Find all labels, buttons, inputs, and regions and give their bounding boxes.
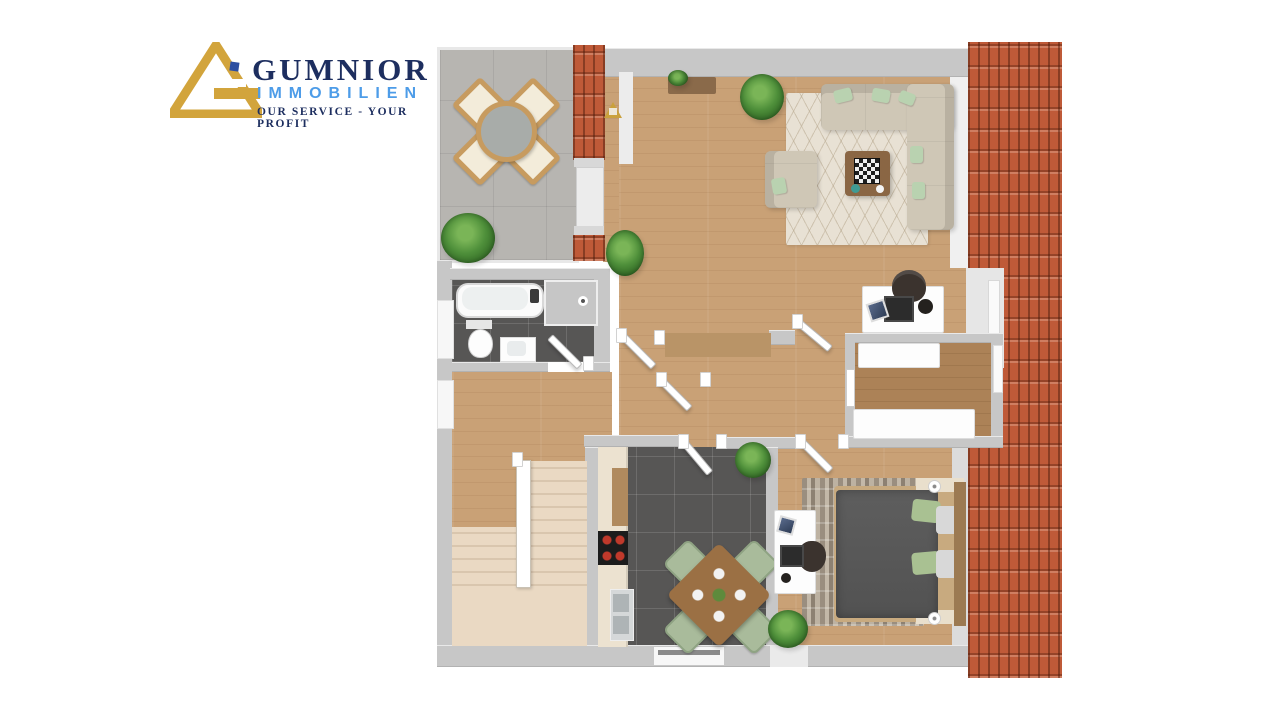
terrace-plant — [441, 213, 495, 263]
terrace-door-sill-bottom — [574, 226, 604, 235]
kitchen-stove — [598, 531, 628, 565]
entrance-marker-icon — [604, 102, 622, 118]
living-room-plant — [740, 74, 784, 120]
toilet-tank — [466, 320, 492, 329]
terrace-door-sill-top — [574, 158, 604, 167]
sink-basin-1 — [613, 594, 629, 612]
kitchen-plant — [735, 442, 771, 478]
logo-brand-text: GUMNIOR — [252, 52, 430, 88]
sofa-pillow-4 — [910, 146, 923, 163]
door-jamb — [792, 314, 803, 329]
terrace-glass-door — [576, 167, 604, 229]
door-jamb — [678, 434, 689, 449]
door-jamb — [716, 434, 727, 449]
table-candle — [876, 185, 884, 193]
sofa-pillow-5 — [912, 182, 925, 199]
left-wall-window-1 — [437, 300, 454, 359]
office-laptop — [884, 296, 914, 322]
door-jamb — [700, 372, 711, 387]
door-jamb — [795, 434, 806, 449]
hallway-step-platform — [665, 333, 771, 357]
company-logo: GUMNIOR IMMOBILIEN OUR SERVICE - YOUR PR… — [170, 40, 450, 126]
door-jamb — [583, 356, 594, 371]
door-jamb — [616, 328, 627, 343]
terrace-table — [476, 101, 537, 162]
bedside-lamp-bottom — [928, 612, 941, 625]
sink-basin-2 — [613, 616, 629, 634]
bathtub-basin — [462, 287, 528, 310]
bedroom-plant — [768, 610, 808, 648]
wardrobe-top — [858, 343, 940, 368]
dressing-window — [993, 345, 1003, 393]
kitchen-counter-wood — [612, 468, 628, 526]
stairs-railing — [516, 460, 531, 588]
roof-strip-terrace-top — [573, 45, 605, 160]
bedside-lamp-top — [928, 480, 941, 493]
floor-plan-page: GUMNIOR IMMOBILIEN OUR SERVICE - YOUR PR… — [0, 0, 1280, 721]
stairs-flight-right — [529, 461, 587, 586]
sideboard-plant — [668, 70, 688, 86]
chessboard — [854, 158, 880, 184]
dressing-door — [846, 369, 855, 407]
hallway-plant — [606, 230, 644, 276]
roof-strip-terrace-bottom — [573, 235, 605, 261]
door-jamb — [838, 434, 849, 449]
door-jamb — [656, 372, 667, 387]
bathtub-faucet — [530, 289, 539, 303]
armchair-pillow — [771, 177, 788, 195]
kitchen-top-wall — [584, 435, 686, 447]
hallway-wall-stub — [769, 330, 795, 345]
top-exterior-wall — [605, 48, 968, 77]
table-vase — [851, 184, 860, 193]
bedroom-desk-lamp — [781, 573, 791, 583]
logo-tagline-text: OUR SERVICE - YOUR PROFIT — [257, 106, 450, 130]
wardrobe-bottom — [853, 409, 975, 439]
left-wall-window-2 — [437, 380, 454, 429]
stairs-flight-left — [452, 527, 516, 586]
shower-handle — [578, 296, 588, 306]
door-jamb — [512, 452, 523, 467]
bedroom-laptop — [780, 545, 804, 567]
bottom-wall-opening — [770, 645, 808, 667]
dressing-top-wall — [845, 333, 1003, 343]
door-jamb — [654, 330, 665, 345]
office-lamp — [918, 299, 933, 314]
logo-triangle-icon — [170, 42, 262, 118]
entry-interior-wall — [619, 72, 633, 164]
vanity-sink — [507, 341, 526, 356]
bathroom-bottom-wall — [452, 362, 548, 372]
shower — [544, 280, 598, 326]
logo-subtitle-text: IMMOBILIEN — [257, 85, 423, 103]
toilet-bowl — [468, 329, 493, 358]
bathroom-top-wall — [450, 268, 610, 280]
dormer-window — [988, 280, 1000, 334]
bed-headboard — [954, 482, 966, 626]
stairs-lower-landing — [452, 586, 587, 646]
